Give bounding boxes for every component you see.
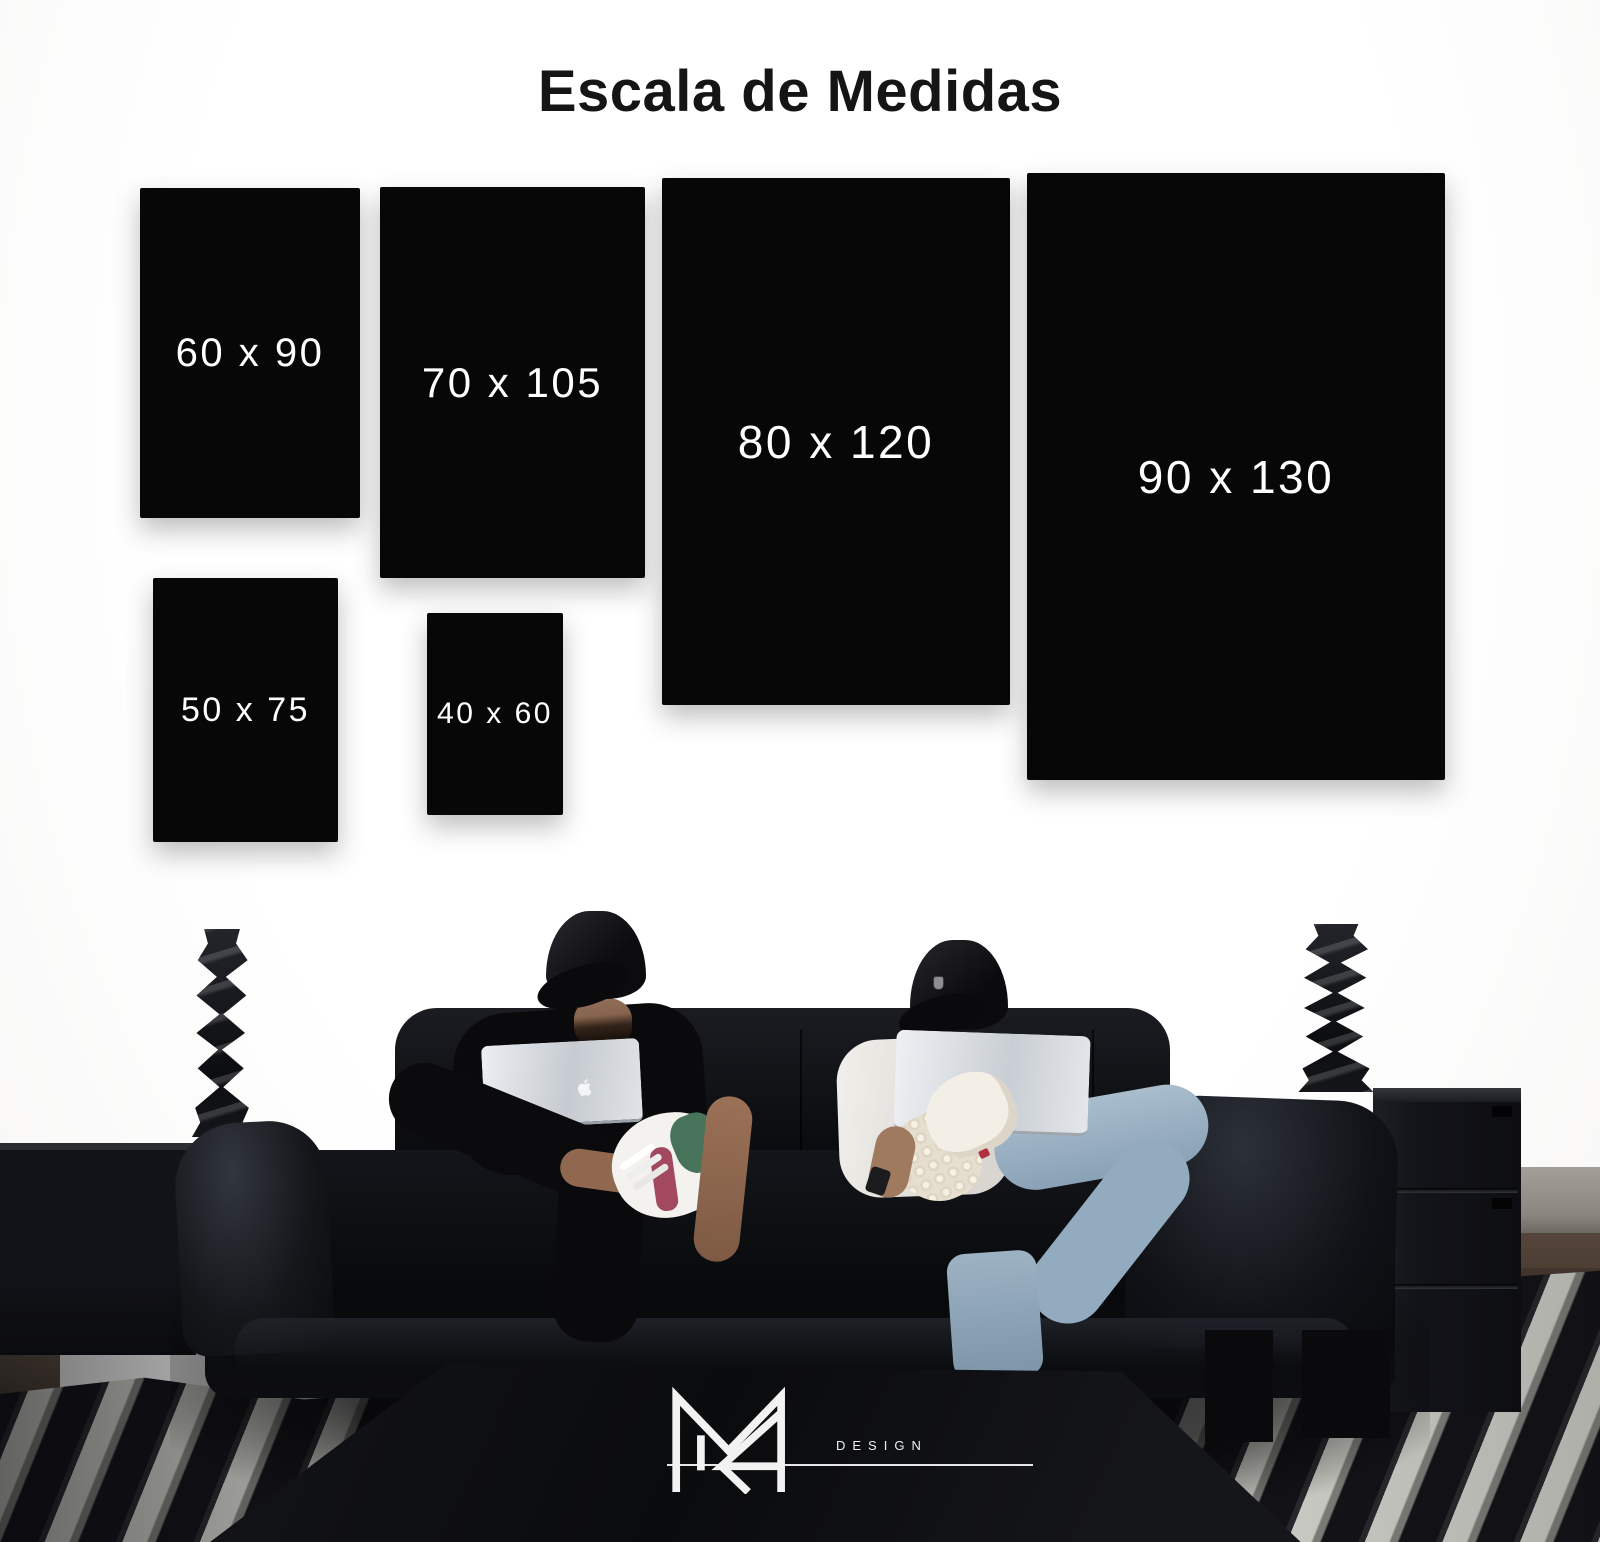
size-card-70x105: 70 x 105 (380, 187, 645, 578)
cap-shield-badge-icon (933, 976, 944, 990)
brand-monogram-icon (663, 1386, 819, 1494)
dresser-drawer-gap (1376, 1284, 1518, 1289)
size-card-40x60: 40 x 60 (427, 613, 563, 815)
size-label-40x60: 40 x 60 (437, 697, 553, 731)
size-label-70x105: 70 x 105 (422, 359, 603, 407)
page-title: Escala de Medidas (0, 58, 1600, 125)
size-card-50x75: 50 x 75 (153, 578, 338, 842)
size-label-80x120: 80 x 120 (738, 415, 934, 469)
dresser-top-edge (1373, 1088, 1521, 1102)
dresser-handle-notch (1492, 1106, 1512, 1117)
apple-logo-icon (574, 1078, 592, 1099)
couch-leg (1302, 1330, 1390, 1438)
twisted-sculpture-right (1296, 924, 1376, 1092)
man-right-jeans-lower-leg (946, 1249, 1045, 1381)
dresser-handle-notch (1492, 1198, 1512, 1209)
size-card-80x120: 80 x 120 (662, 178, 1010, 705)
size-label-90x130: 90 x 130 (1138, 450, 1334, 504)
size-card-90x130: 90 x 130 (1027, 173, 1445, 780)
side-table-left (0, 1143, 196, 1355)
twisted-sculpture-left (190, 929, 254, 1137)
baseboard-right (1516, 1167, 1600, 1235)
size-label-60x90: 60 x 90 (176, 331, 325, 376)
size-label-50x75: 50 x 75 (181, 691, 310, 730)
couch-leg (1205, 1330, 1273, 1442)
brand-wordmark: DESIGN (836, 1438, 928, 1453)
size-guide-poster: Escala de Medidas 60 x 90 70 x 105 80 x … (0, 0, 1600, 1542)
size-card-60x90: 60 x 90 (140, 188, 360, 518)
